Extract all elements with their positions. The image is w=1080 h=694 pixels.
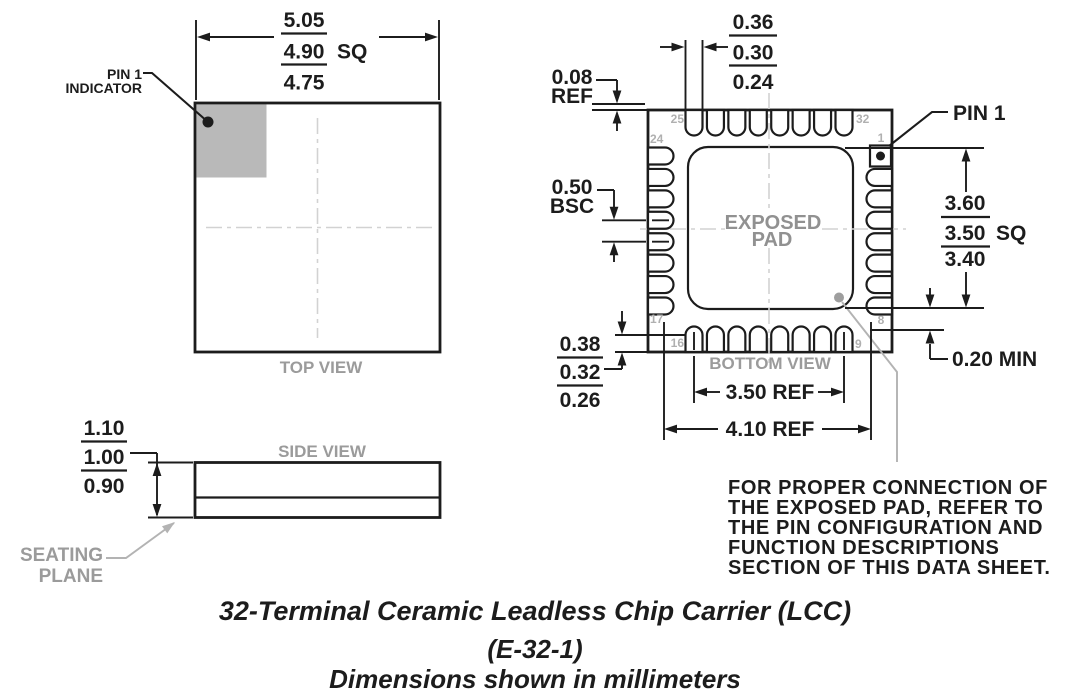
package-drawing: PIN 1 INDICATOR 5.05 4.90 SQ 4.75 TOP VI… bbox=[0, 0, 1080, 694]
note-leader bbox=[842, 302, 897, 462]
terminal-pad bbox=[836, 110, 853, 136]
pin-number-8: 8 bbox=[878, 313, 885, 327]
caption-units: Dimensions shown in millimeters bbox=[329, 664, 741, 694]
terminal-pad bbox=[814, 110, 831, 136]
pin-number-24: 24 bbox=[650, 132, 664, 146]
terminal-pad bbox=[648, 190, 674, 207]
pin1-dot bbox=[876, 152, 885, 161]
terminal-pad bbox=[867, 190, 893, 207]
terminal-pad bbox=[793, 327, 810, 353]
caption-title: 32-Terminal Ceramic Leadless Chip Carrie… bbox=[219, 596, 851, 626]
terminal-pad bbox=[648, 148, 674, 165]
lcc-outline-drawing: PIN 1 INDICATOR 5.05 4.90 SQ 4.75 TOP VI… bbox=[0, 0, 1080, 694]
thickness-nom: 1.00 bbox=[84, 446, 125, 469]
arrowhead bbox=[831, 388, 844, 397]
arrowhead bbox=[694, 388, 707, 397]
arrowhead bbox=[962, 295, 971, 308]
exposed-pad-dot bbox=[834, 293, 844, 303]
terminal-pad bbox=[867, 298, 893, 315]
terminal-pad bbox=[867, 255, 893, 272]
side-view-body bbox=[195, 463, 440, 518]
body-dim-unit: SQ bbox=[337, 41, 367, 64]
arrowhead bbox=[197, 33, 210, 42]
terminal-pad bbox=[648, 276, 674, 293]
exposed-dim-unit: SQ bbox=[996, 222, 1026, 245]
exposed-dim-nom: 3.50 bbox=[945, 222, 986, 245]
terminal-top-min: 0.24 bbox=[733, 71, 774, 94]
top-view: PIN 1 INDICATOR 5.05 4.90 SQ 4.75 TOP VI… bbox=[66, 9, 440, 377]
terminal-pad bbox=[867, 169, 893, 186]
arrowhead bbox=[926, 331, 935, 344]
pin-span-label: 3.50 REF bbox=[726, 381, 815, 404]
pin1-indicator-leader bbox=[143, 73, 208, 122]
body-dim-max: 5.05 bbox=[284, 9, 325, 32]
gap-min-label: 0.20 MIN bbox=[952, 348, 1037, 371]
terminal-pad bbox=[867, 233, 893, 250]
thickness-max: 1.10 bbox=[84, 417, 125, 440]
terminal-pad bbox=[771, 327, 788, 353]
exposed-dim-max: 3.60 bbox=[945, 192, 986, 215]
terminal-pad bbox=[686, 110, 703, 136]
pin-number-16: 16 bbox=[671, 336, 685, 350]
arrowhead bbox=[926, 295, 935, 308]
terminal-pad bbox=[867, 212, 893, 229]
arrowhead bbox=[618, 353, 627, 366]
terminal-left-nom: 0.32 bbox=[560, 361, 601, 384]
pin-number-32: 32 bbox=[856, 112, 870, 126]
pin-number-9: 9 bbox=[855, 337, 862, 351]
terminal-left-max: 0.38 bbox=[560, 333, 601, 356]
note-line-4: FUNCTION DESCRIPTIONS bbox=[728, 537, 1000, 559]
side-view-label: SIDE VIEW bbox=[278, 442, 367, 461]
terminal-pad bbox=[867, 276, 893, 293]
seating-plane-label: PLANE bbox=[39, 566, 103, 587]
arrowhead bbox=[610, 207, 619, 220]
terminal-pad bbox=[750, 110, 767, 136]
terminal-pad bbox=[728, 110, 745, 136]
arrowhead bbox=[858, 425, 871, 434]
note-line-1: FOR PROPER CONNECTION OF bbox=[728, 477, 1048, 499]
thickness-min: 0.90 bbox=[84, 475, 125, 498]
pin1-indicator-dot bbox=[203, 117, 214, 128]
arrowhead bbox=[962, 149, 971, 162]
row-span-label: 4.10 REF bbox=[726, 418, 815, 441]
terminal-pad bbox=[648, 255, 674, 272]
seating-plane-label: SEATING bbox=[20, 545, 103, 566]
terminal-left-min: 0.26 bbox=[560, 389, 601, 412]
caption-package-code: (E-32-1) bbox=[487, 634, 582, 664]
pin1-indicator-mark bbox=[197, 105, 267, 178]
pin-number-17: 17 bbox=[650, 312, 664, 326]
note-line-5: SECTION OF THIS DATA SHEET. bbox=[728, 557, 1051, 579]
edge-ref-suffix: REF bbox=[551, 85, 593, 108]
pin1-indicator-label: INDICATOR bbox=[66, 80, 142, 96]
caption: 32-Terminal Ceramic Leadless Chip Carrie… bbox=[219, 596, 851, 694]
exposed-dim-min: 3.40 bbox=[945, 248, 986, 271]
body-dim-min: 4.75 bbox=[284, 72, 325, 95]
arrowhead bbox=[613, 111, 622, 124]
arrowhead bbox=[610, 242, 619, 255]
note-line-2: THE EXPOSED PAD, REFER TO bbox=[728, 497, 1043, 519]
side-view: 1.10 1.00 0.90 SIDE VIEW SEATING PLANE bbox=[20, 417, 440, 587]
terminal-pad bbox=[648, 169, 674, 186]
bottom-view-label: BOTTOM VIEW bbox=[709, 354, 831, 373]
terminal-pad bbox=[793, 110, 810, 136]
note-line-3: THE PIN CONFIGURATION AND bbox=[728, 517, 1043, 539]
top-view-label: TOP VIEW bbox=[280, 358, 363, 377]
terminal-pad bbox=[728, 327, 745, 353]
terminal-pad bbox=[707, 327, 724, 353]
arrowhead bbox=[613, 91, 622, 104]
terminal-pad bbox=[814, 327, 831, 353]
terminal-pad bbox=[771, 110, 788, 136]
arrowhead bbox=[704, 43, 717, 52]
arrowhead bbox=[153, 463, 162, 476]
pitch-suffix: BSC bbox=[550, 195, 594, 218]
terminal-pad bbox=[750, 327, 767, 353]
body-dim-nom: 4.90 bbox=[284, 41, 325, 64]
exposed-pad-note: FOR PROPER CONNECTION OF THE EXPOSED PAD… bbox=[728, 477, 1051, 579]
arrowhead bbox=[425, 33, 438, 42]
arrowhead bbox=[672, 43, 685, 52]
arrowhead bbox=[664, 425, 677, 434]
terminal-pad bbox=[707, 110, 724, 136]
exposed-pad-label: PAD bbox=[752, 229, 793, 251]
pin1-callout-label: PIN 1 bbox=[953, 102, 1006, 125]
pin-number-1: 1 bbox=[878, 131, 885, 145]
terminal-top-max: 0.36 bbox=[733, 11, 774, 34]
arrowhead bbox=[618, 322, 627, 335]
arrowhead bbox=[153, 504, 162, 517]
pin1-leader bbox=[889, 112, 948, 146]
terminal-top-nom: 0.30 bbox=[733, 42, 774, 65]
pin-number-25: 25 bbox=[671, 112, 685, 126]
